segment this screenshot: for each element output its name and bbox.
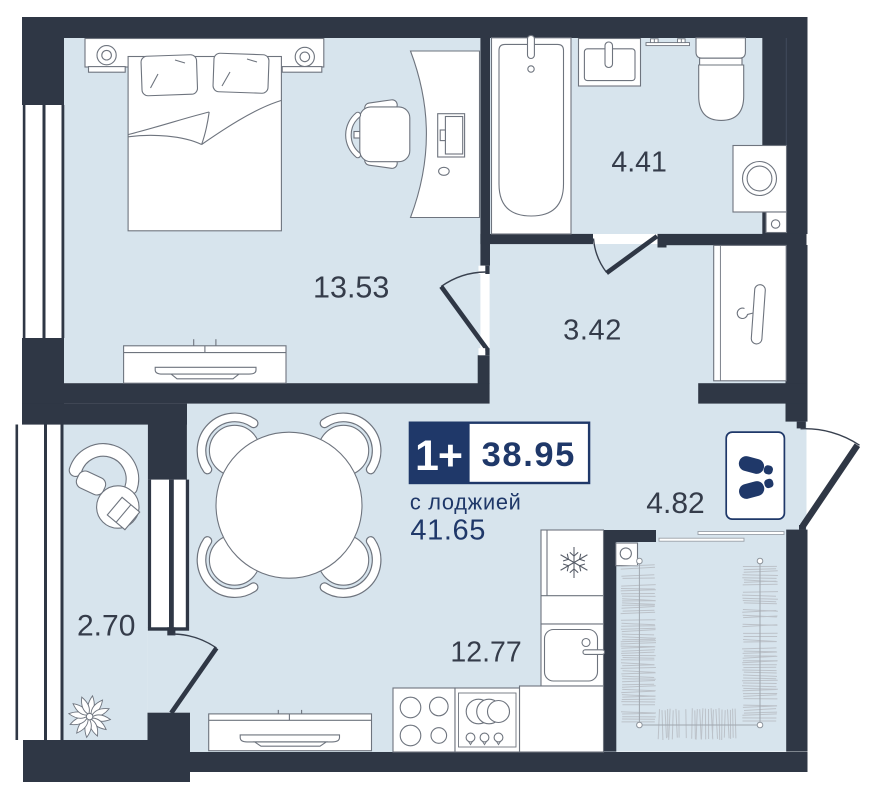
svg-text:4.82: 4.82 [646, 487, 704, 520]
svg-text:38.95: 38.95 [482, 436, 576, 474]
svg-text:3.42: 3.42 [563, 314, 622, 346]
svg-text:1+: 1+ [415, 432, 462, 480]
svg-text:13.53: 13.53 [313, 271, 389, 305]
svg-text:2.70: 2.70 [77, 610, 135, 643]
svg-text:41.65: 41.65 [410, 515, 486, 547]
svg-text:с лоджией: с лоджией [410, 490, 522, 515]
svg-text:4.41: 4.41 [611, 147, 666, 179]
svg-text:12.77: 12.77 [450, 636, 521, 668]
